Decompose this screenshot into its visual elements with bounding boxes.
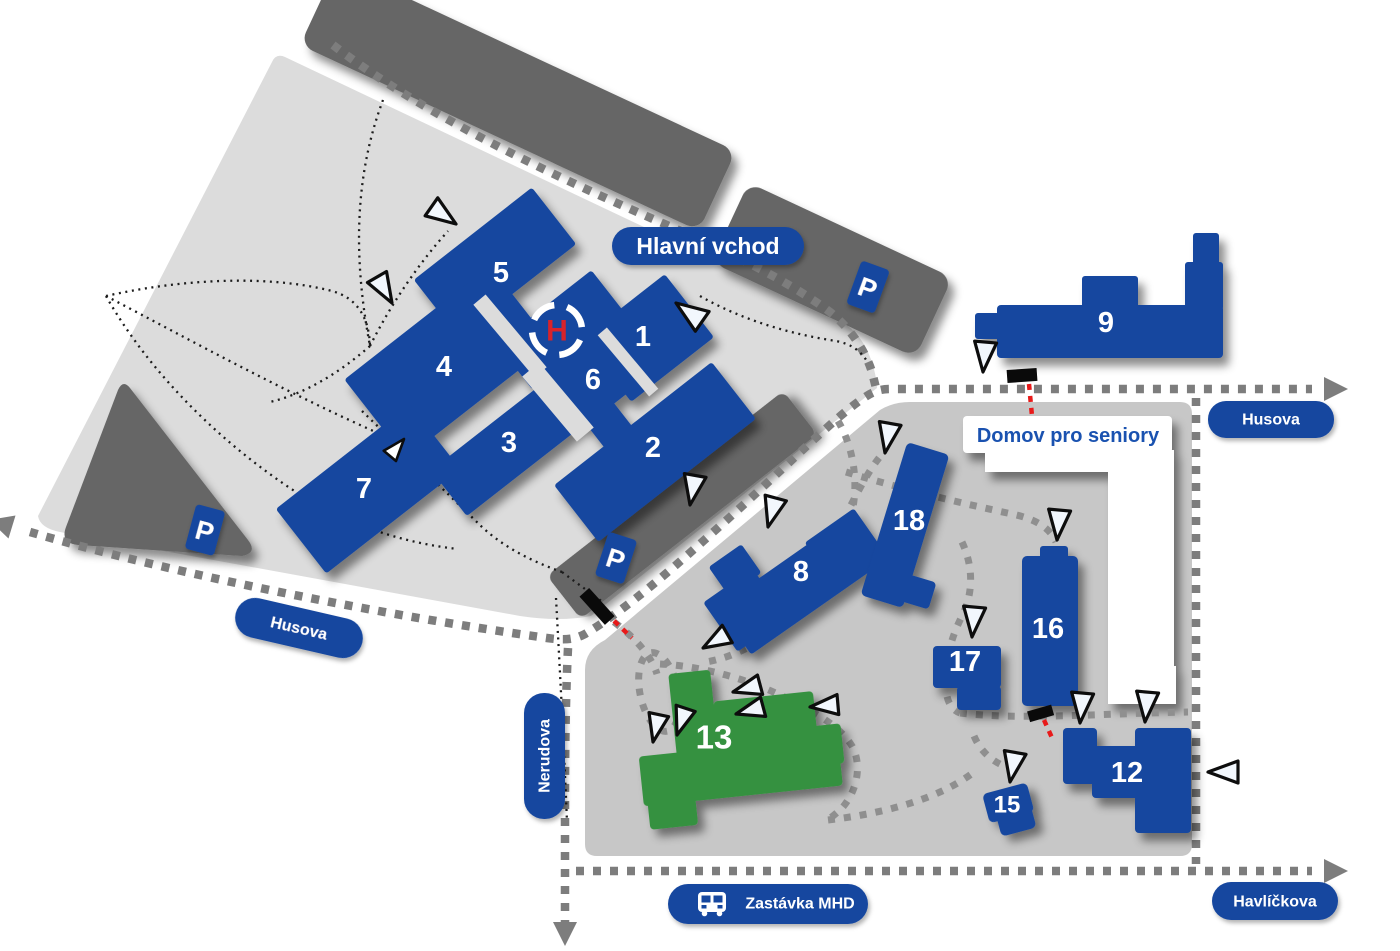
building-17-label: 17 bbox=[949, 646, 981, 678]
svg-text:Nerudova: Nerudova bbox=[537, 719, 554, 793]
building-9 bbox=[975, 233, 1223, 358]
hospital-campus-map: 1 2 3 4 5 6 7 8 9 12 13 15 16 17 18 H bbox=[0, 0, 1400, 951]
building-9-label: 9 bbox=[1098, 307, 1114, 339]
building-16-label: 16 bbox=[1032, 613, 1064, 645]
svg-text:Hlavní vchod: Hlavní vchod bbox=[636, 233, 779, 259]
building-3-label: 3 bbox=[501, 427, 517, 459]
bus-stop-label: Zastávka MHD bbox=[668, 884, 868, 924]
road-arrow-east-havlickova bbox=[1324, 859, 1348, 883]
entrance-arrow-9 bbox=[972, 341, 997, 373]
building-6-label: 6 bbox=[585, 364, 601, 396]
building-15-label: 15 bbox=[994, 791, 1021, 818]
main-entrance-label: Hlavní vchod bbox=[612, 227, 804, 265]
building-2-label: 2 bbox=[645, 432, 661, 464]
building-4-label: 4 bbox=[436, 351, 452, 383]
street-label-havlickova: Havlíčkova bbox=[1212, 882, 1338, 920]
street-label-nerudova: Nerudova bbox=[524, 693, 565, 819]
svg-text:Zastávka MHD: Zastávka MHD bbox=[745, 896, 854, 913]
road-arrow-south-nerudova bbox=[553, 922, 577, 946]
svg-text:Havlíčkova: Havlíčkova bbox=[1233, 894, 1317, 911]
building-13-label: 13 bbox=[696, 719, 733, 756]
building-12-label: 12 bbox=[1111, 757, 1143, 789]
road-nerudova bbox=[565, 648, 568, 928]
building-1-label: 1 bbox=[635, 321, 651, 353]
road-arrow-east-husova bbox=[1324, 377, 1348, 401]
building-5-label: 5 bbox=[493, 257, 509, 289]
building-18-label: 18 bbox=[893, 505, 925, 537]
senior-home-label: Domov pro seniory bbox=[977, 425, 1160, 447]
street-label-husova-east: Husova bbox=[1208, 401, 1334, 438]
road-arrow-west bbox=[0, 509, 16, 539]
building-8-label: 8 bbox=[793, 556, 809, 588]
building-7-label: 7 bbox=[356, 473, 372, 505]
svg-text:Husova: Husova bbox=[1242, 412, 1300, 429]
helipad-letter: H bbox=[546, 315, 568, 348]
entrance-arrow-12-east bbox=[1208, 761, 1238, 783]
